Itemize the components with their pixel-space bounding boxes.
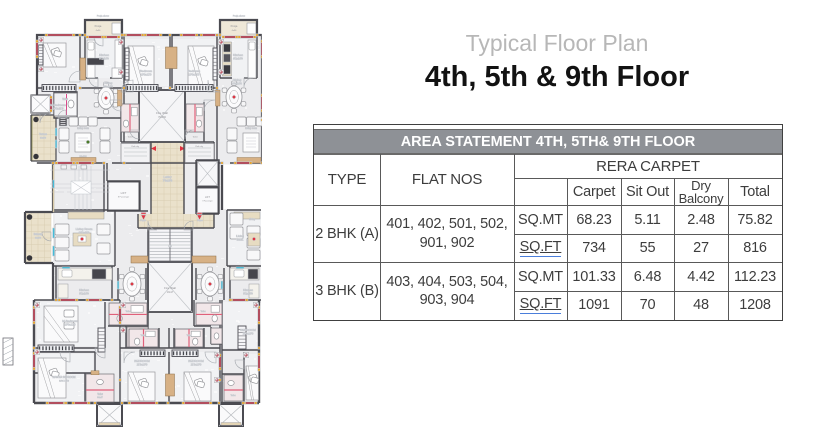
- svg-text:Bedroom: Bedroom: [140, 69, 153, 73]
- svg-text:4x36: 4x36: [96, 30, 102, 32]
- svg-text:11'0x10'0: 11'0x10'0: [243, 332, 254, 336]
- svg-text:10'0x11'6: 10'0x11'6: [53, 107, 64, 111]
- svg-text:LIFT: LIFT: [205, 196, 210, 199]
- svg-text:10'0x12'0: 10'0x12'0: [65, 323, 76, 327]
- svg-text:Toilet: Toilet: [186, 334, 191, 337]
- svg-text:BEDROOM: BEDROOM: [240, 328, 256, 332]
- svg-text:Up: Up: [168, 244, 172, 248]
- svg-text:Cloth dry: Cloth dry: [131, 145, 139, 148]
- svg-text:19x17: 19x17: [167, 291, 174, 294]
- svg-text:Toilet: Toilet: [125, 310, 130, 313]
- svg-text:8 Passenger: 8 Passenger: [202, 201, 212, 203]
- svg-text:8'0x10'6: 8'0x10'6: [103, 85, 113, 89]
- svg-text:8'1x10'0: 8'1x10'0: [233, 57, 243, 61]
- svg-text:Foyer: Foyer: [197, 219, 203, 222]
- svg-text:7'6x19'6: 7'6x19'6: [163, 179, 173, 183]
- svg-text:8 Passenger: 8 Passenger: [118, 197, 130, 199]
- svg-text:LIFT: LIFT: [121, 191, 127, 195]
- svg-text:Living room: Living room: [77, 127, 89, 130]
- svg-text:Pooja above: Pooja above: [97, 16, 110, 18]
- svg-text:Toilet: Toilet: [62, 98, 68, 101]
- svg-text:Kitchen: Kitchen: [99, 53, 109, 57]
- svg-text:16x11: 16x11: [237, 238, 244, 242]
- svg-text:4x36: 4x36: [232, 30, 238, 32]
- svg-text:Toilet: Toilet: [230, 394, 235, 397]
- svg-text:Pooja: Pooja: [231, 24, 238, 28]
- svg-text:BEDROOM: BEDROOM: [188, 359, 204, 363]
- svg-text:Cloth dry: Cloth dry: [195, 145, 203, 148]
- svg-text:Kitchen: Kitchen: [243, 288, 253, 292]
- svg-text:Toilet: Toilet: [97, 393, 103, 396]
- svg-text:Fire Wall: Fire Wall: [164, 286, 176, 290]
- svg-text:Fire Wall: Fire Wall: [156, 111, 168, 115]
- svg-text:12'0 X 11'0: 12'0 X 11'0: [59, 380, 70, 382]
- svg-text:76x150: 76x150: [158, 116, 167, 119]
- svg-text:Toilet: Toilet: [200, 310, 205, 313]
- svg-text:10'0x12'0: 10'0x12'0: [141, 73, 152, 77]
- svg-text:Pooja above: Pooja above: [233, 16, 246, 18]
- svg-text:10'0x12'0: 10'0x12'0: [189, 73, 200, 77]
- svg-text:11'0x10'0: 11'0x10'0: [137, 363, 148, 367]
- svg-text:Toilet: Toilet: [140, 334, 145, 337]
- svg-text:Toilet: Toilet: [192, 136, 197, 139]
- svg-text:Balcony: Balcony: [34, 233, 43, 236]
- svg-text:Lobby: Lobby: [163, 175, 172, 179]
- svg-text:8'0x10'6: 8'0x10'6: [232, 82, 242, 86]
- svg-text:Foyer: Foyer: [140, 219, 146, 222]
- svg-text:Terrace: Terrace: [39, 133, 48, 136]
- svg-text:BEDROOM: BEDROOM: [134, 359, 150, 363]
- svg-text:8'1x10'0: 8'1x10'0: [79, 292, 89, 296]
- svg-text:11'0x10'0: 11'0x10'0: [191, 363, 202, 367]
- svg-text:Kitchen: Kitchen: [79, 288, 89, 292]
- svg-text:M.Bedroom: M.Bedroom: [62, 319, 78, 323]
- svg-text:Pooja: Pooja: [95, 24, 102, 28]
- svg-text:Bedroom: Bedroom: [188, 69, 201, 73]
- svg-text:MASTER BEDROOM: MASTER BEDROOM: [53, 376, 76, 379]
- svg-text:16'0x11'0: 16'0x11'0: [79, 231, 90, 235]
- svg-text:6'x11'0: 6'x11'0: [40, 137, 47, 139]
- svg-text:Dining: Dining: [233, 78, 242, 82]
- svg-text:8'1x10'0: 8'1x10'0: [99, 57, 109, 61]
- svg-text:M.Bedroom: M.Bedroom: [50, 103, 66, 107]
- svg-text:84x47: 84x47: [97, 397, 103, 399]
- svg-text:Living: Living: [249, 219, 256, 221]
- svg-text:Living Room: Living Room: [76, 227, 93, 231]
- svg-text:Dining: Dining: [104, 81, 113, 85]
- svg-text:6'x11'0: 6'x11'0: [35, 237, 42, 239]
- svg-text:Living: Living: [236, 234, 244, 238]
- svg-text:8'1x10'0: 8'1x10'0: [243, 292, 253, 296]
- svg-text:Kitchen: Kitchen: [233, 53, 243, 57]
- svg-text:Living room: Living room: [245, 127, 257, 130]
